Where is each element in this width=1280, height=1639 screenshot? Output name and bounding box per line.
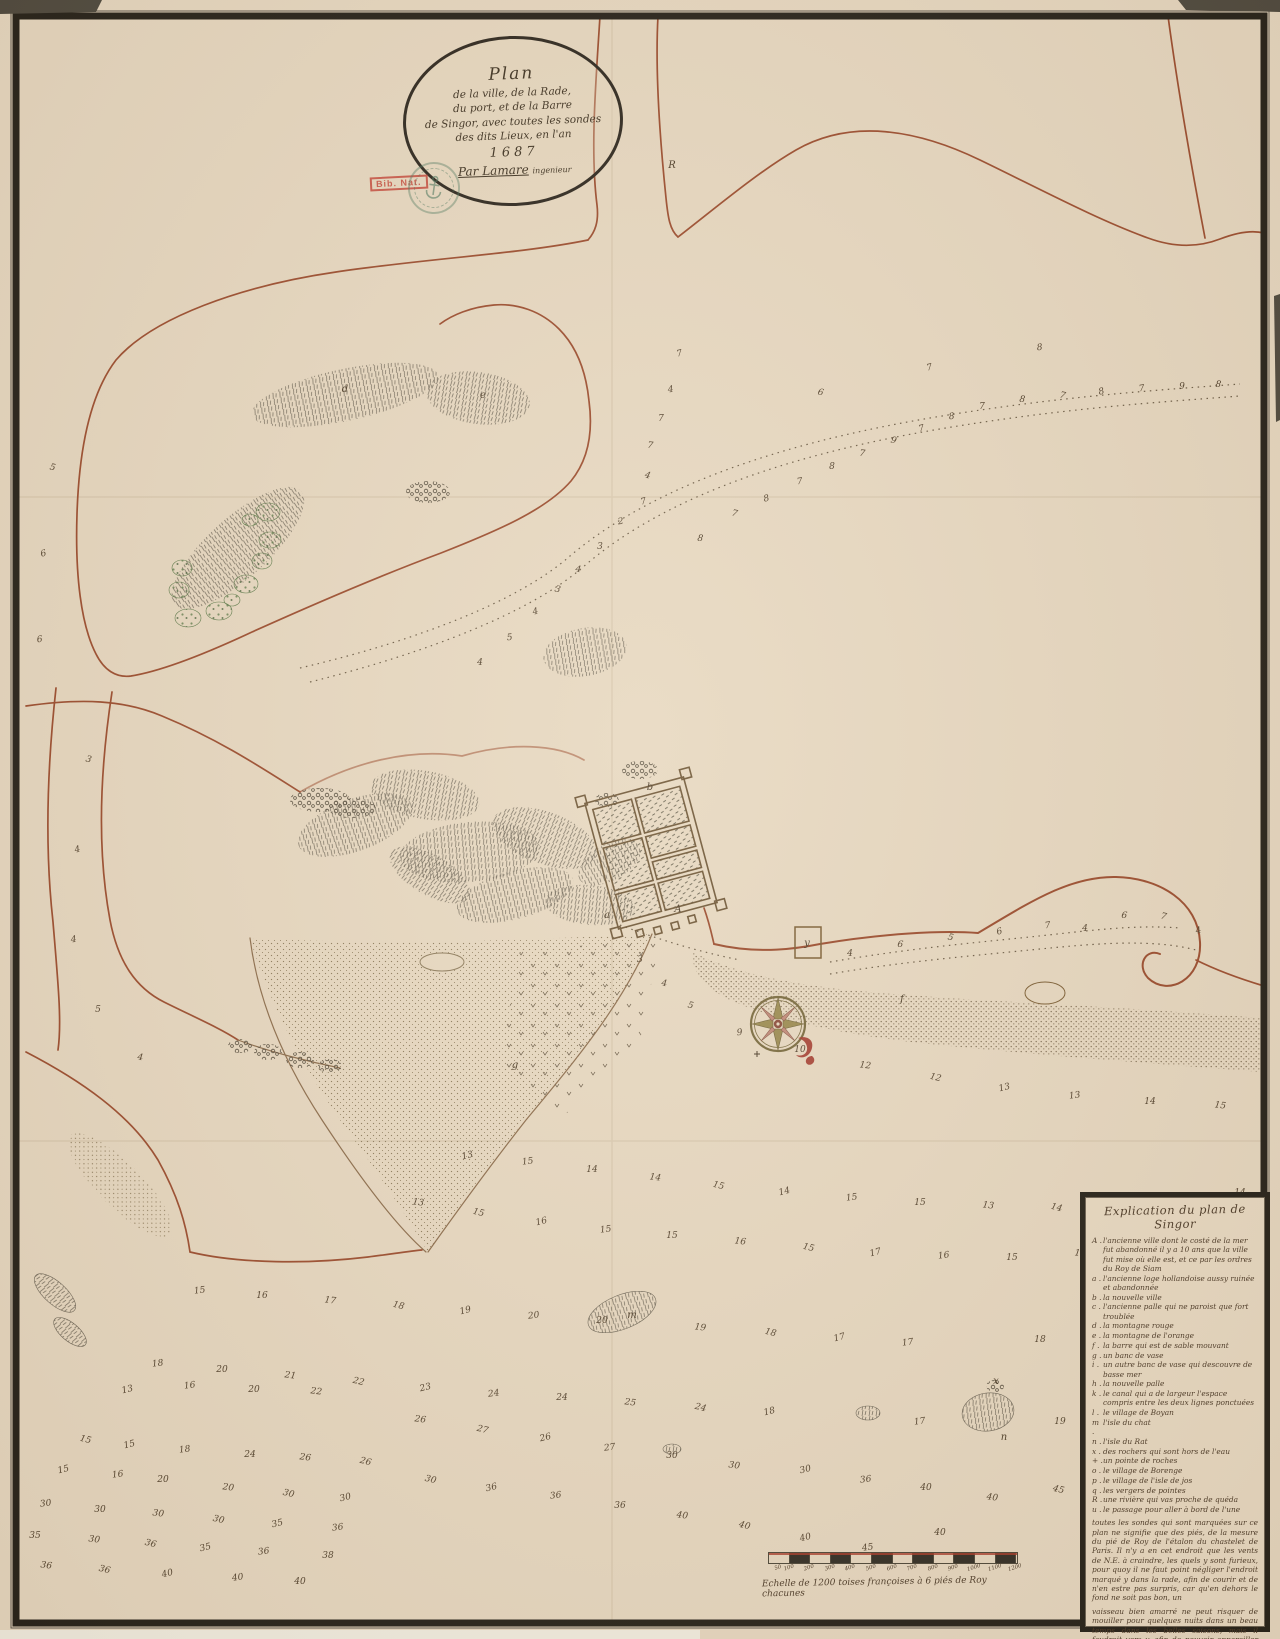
legend-entry: o .le village de Borenge bbox=[1092, 1466, 1258, 1475]
roadstead-south-shore bbox=[714, 877, 1200, 986]
sounding-number: 7 bbox=[918, 423, 926, 434]
sounding-number: 6 bbox=[897, 940, 904, 951]
sounding-number: 40 bbox=[160, 1568, 175, 1581]
sounding-number: 5 bbox=[506, 633, 513, 644]
sounding-number: 5 bbox=[48, 463, 56, 474]
scale-bar: 5010020030040050060070080090010001100120… bbox=[760, 1552, 1030, 1597]
sounding-number: 7 bbox=[1044, 921, 1051, 932]
sounding-number: 30 bbox=[666, 1451, 678, 1461]
scale-segment bbox=[913, 1553, 934, 1563]
sounding-number: 40 bbox=[675, 1510, 689, 1521]
sounding-number: 13 bbox=[982, 1200, 995, 1211]
sounding-number: 19 bbox=[694, 1322, 707, 1333]
map-year: 1687 bbox=[489, 143, 539, 162]
scale-tick-label: 100 bbox=[783, 1564, 795, 1573]
sounding-number: 8 bbox=[829, 462, 835, 472]
sounding-number: 16 bbox=[256, 1291, 268, 1301]
northwest-peninsula bbox=[77, 240, 591, 676]
sounding-number: 12 bbox=[929, 1072, 943, 1085]
sounding-number: 8 bbox=[1215, 380, 1222, 391]
sounding-number: 7 bbox=[658, 414, 664, 424]
reference-letter: m bbox=[627, 1310, 636, 1321]
sounding-number: 40 bbox=[737, 1520, 752, 1533]
scale-segment bbox=[810, 1553, 831, 1563]
sounding-number: 40 bbox=[985, 1492, 999, 1503]
legend-entry: + .un pointe de roches bbox=[1092, 1456, 1258, 1465]
sounding-number: 4 bbox=[73, 844, 82, 855]
legend-entries: A .l'ancienne ville dont le costé de la … bbox=[1092, 1236, 1258, 1514]
reference-letter: A bbox=[673, 904, 681, 915]
sounding-number: 40 bbox=[919, 1483, 932, 1493]
scale-tick-label: 1200 bbox=[1008, 1563, 1023, 1573]
sounding-number: 17 bbox=[869, 1247, 883, 1260]
sounding-number: 36 bbox=[40, 1560, 53, 1571]
legend-title: Explication du plan de Singor bbox=[1092, 1202, 1258, 1233]
scale-segment bbox=[790, 1553, 811, 1563]
sounding-number: 9 bbox=[889, 436, 897, 447]
sounding-number: 40 bbox=[798, 1532, 813, 1545]
sounding-number: 30 bbox=[94, 1505, 106, 1515]
sounding-number: 20 bbox=[221, 1482, 235, 1493]
sounding-number: 20 bbox=[156, 1475, 169, 1485]
sounding-number: 24 bbox=[555, 1393, 568, 1403]
isle-du-chat bbox=[582, 1283, 661, 1341]
sounding-number: 14 bbox=[649, 1172, 662, 1183]
legend-entry: R .une rivière qui vas proche de quéda bbox=[1092, 1495, 1258, 1504]
sounding-number: 4 bbox=[69, 935, 77, 946]
sounding-number: 30 bbox=[88, 1534, 101, 1545]
scale-tick-label: 1100 bbox=[987, 1563, 1002, 1573]
legend-panel: Explication du plan de Singor A .l'ancie… bbox=[1080, 1192, 1270, 1632]
sounding-number: 36 bbox=[549, 1490, 562, 1501]
legend-entry: e .la montagne de l'orange bbox=[1092, 1331, 1258, 1340]
sounding-number: 40 bbox=[933, 1528, 946, 1538]
scale-segment bbox=[954, 1553, 975, 1563]
scale-bar-ticks: 5010020030040050060070080090010001100120… bbox=[768, 1564, 1016, 1574]
reference-letter: b bbox=[647, 782, 653, 793]
scale-tick-label: 900 bbox=[947, 1564, 959, 1573]
sounding-number: 4 bbox=[1194, 925, 1203, 936]
reference-letter: a bbox=[604, 910, 610, 921]
compass-cross bbox=[754, 1051, 760, 1057]
sounding-number: 13 bbox=[998, 1082, 1012, 1095]
sounding-number: 18 bbox=[178, 1444, 191, 1455]
legend-entry: g .un banc de vase bbox=[1092, 1351, 1258, 1360]
legend-entry: q .les vergers de pointes bbox=[1092, 1486, 1258, 1495]
sounding-number: 25 bbox=[623, 1397, 637, 1408]
sounding-number: 4 bbox=[136, 1053, 144, 1064]
sounding-number: 17 bbox=[913, 1416, 926, 1427]
reference-letter: d bbox=[342, 384, 348, 395]
sounding-number: 36 bbox=[859, 1474, 872, 1485]
sounding-number: 7 bbox=[926, 362, 934, 373]
sounding-number: 14 bbox=[778, 1186, 792, 1199]
sounding-number: 20 bbox=[215, 1365, 228, 1375]
sounding-number: 15 bbox=[472, 1207, 486, 1220]
river-east-bank bbox=[657, 16, 678, 237]
scale-segment bbox=[831, 1553, 852, 1563]
sounding-number: 8 bbox=[1036, 343, 1043, 354]
scale-tick-label: 700 bbox=[906, 1564, 918, 1573]
sounding-number: 20 bbox=[595, 1316, 608, 1326]
sounding-number: 7 bbox=[979, 402, 985, 412]
corner-shore bbox=[1168, 16, 1205, 238]
west-river-bank2 bbox=[102, 692, 238, 1040]
sounding-number: 7 bbox=[1058, 391, 1066, 402]
sounding-number: 14 bbox=[1050, 1202, 1064, 1215]
author-signature: Par Lamare ingenieur bbox=[458, 160, 572, 180]
sounding-number: 4 bbox=[643, 470, 652, 481]
stamp-ring bbox=[411, 165, 456, 210]
sounding-number: 16 bbox=[111, 1469, 124, 1480]
northeast-shore bbox=[678, 131, 1264, 245]
sounding-number: 4 bbox=[531, 606, 540, 617]
sounding-number: 3 bbox=[597, 542, 603, 552]
legend-entry: l .le village de Boyan bbox=[1092, 1408, 1258, 1417]
legend-entry: i .un autre banc de vase qui descouvre d… bbox=[1092, 1360, 1258, 1379]
sounding-number: 26 bbox=[538, 1432, 553, 1445]
sounding-number: 23 bbox=[418, 1382, 433, 1395]
sounding-number: 15 bbox=[521, 1156, 534, 1167]
sounding-number: 40 bbox=[293, 1577, 306, 1587]
sounding-number: 24 bbox=[693, 1402, 708, 1415]
bar-blob bbox=[1025, 982, 1065, 1004]
sheet-bottom-edge bbox=[0, 1630, 700, 1639]
sounding-number: 36 bbox=[257, 1546, 270, 1557]
legend-entry: b .la nouvelle ville bbox=[1092, 1293, 1258, 1302]
sounding-number: 16 bbox=[183, 1380, 196, 1391]
scale-segment bbox=[872, 1553, 893, 1563]
legend-entry: a .l'ancienne loge hollandoise aussy rui… bbox=[1092, 1274, 1258, 1293]
scale-tick-label: 300 bbox=[824, 1564, 836, 1573]
scale-segment bbox=[934, 1553, 955, 1563]
sounding-number: 38 bbox=[322, 1551, 334, 1561]
reference-letter: e bbox=[480, 390, 486, 401]
sounding-number: 30 bbox=[424, 1474, 438, 1487]
sounding-number: 30 bbox=[152, 1508, 165, 1519]
soundings-layer: 7477472343454878787978787879867846567467… bbox=[29, 343, 1246, 1587]
sounding-number: 26 bbox=[413, 1414, 427, 1425]
sounding-number: 22 bbox=[309, 1386, 323, 1397]
sounding-number: 7 bbox=[859, 449, 866, 460]
reference-letter: n bbox=[1001, 1432, 1007, 1443]
sounding-number: 36 bbox=[331, 1522, 344, 1533]
reference-letter: y bbox=[803, 938, 810, 949]
islands bbox=[28, 1267, 1016, 1454]
scale-tick-label: 800 bbox=[927, 1564, 939, 1573]
scale-segment bbox=[851, 1553, 872, 1563]
reference-letter: g bbox=[512, 1060, 518, 1071]
scale-tick-label: 600 bbox=[886, 1564, 898, 1573]
sounding-number: 30 bbox=[212, 1514, 226, 1527]
sounding-number: 22 bbox=[351, 1376, 366, 1389]
scale-tick-label: 1000 bbox=[966, 1563, 981, 1573]
legend-notes: toutes les sondes qui sont marquées sur … bbox=[1092, 1518, 1258, 1639]
sounding-number: 27 bbox=[475, 1424, 490, 1437]
sounding-number: 16 bbox=[734, 1236, 747, 1247]
scale-tick-label: 200 bbox=[803, 1564, 815, 1573]
sounding-number: 35 bbox=[199, 1542, 213, 1555]
scale-bar-cells bbox=[768, 1552, 1018, 1564]
sounding-number: 6 bbox=[40, 548, 48, 559]
shore-shoal bbox=[55, 1120, 185, 1250]
sounding-number: 4 bbox=[1081, 924, 1088, 934]
sounding-number: 15 bbox=[1214, 1100, 1227, 1111]
sounding-number: 7 bbox=[1159, 912, 1167, 923]
sounding-number: 9 bbox=[736, 1028, 743, 1039]
sounding-number: 10 bbox=[794, 1045, 806, 1055]
sounding-number: 36 bbox=[98, 1564, 112, 1577]
sounding-number: 5 bbox=[686, 1001, 694, 1012]
scale-caption: Echelle de 1200 toises françoises à 6 pi… bbox=[762, 1575, 1030, 1600]
sounding-number: 9 bbox=[1179, 382, 1185, 392]
sheet-edge-shadows bbox=[0, 0, 1280, 422]
sounding-number: 15 bbox=[712, 1180, 726, 1193]
sounding-number: 15 bbox=[845, 1192, 858, 1203]
map-title: Plan bbox=[488, 63, 535, 88]
sounding-number: 17 bbox=[901, 1337, 914, 1348]
scale-segment bbox=[996, 1553, 1017, 1563]
sounding-number: 14 bbox=[586, 1165, 598, 1175]
sounding-number: 19 bbox=[459, 1305, 473, 1318]
sounding-number: 7 bbox=[676, 348, 684, 359]
sounding-number: 20 bbox=[526, 1310, 540, 1321]
sounding-number: 6 bbox=[36, 635, 43, 646]
legend-note: vaisseau bien amarré ne peut risquer de … bbox=[1092, 1607, 1258, 1639]
town-east-shore bbox=[704, 908, 714, 944]
sounding-number: 7 bbox=[796, 477, 803, 488]
sounding-number: 18 bbox=[764, 1327, 778, 1340]
sounding-number: 30 bbox=[282, 1488, 296, 1501]
legend-entry: d .la montagne rouge bbox=[1092, 1321, 1258, 1330]
scale-tick-label: 50 bbox=[774, 1564, 783, 1572]
scale-segment bbox=[893, 1553, 914, 1563]
sounding-number: 12 bbox=[859, 1060, 872, 1071]
sounding-number: 15 bbox=[57, 1464, 71, 1477]
sounding-number: 4 bbox=[666, 385, 674, 396]
legend-entry: h .la nouvelle palle bbox=[1092, 1379, 1258, 1388]
sounding-number: 15 bbox=[1006, 1253, 1018, 1263]
sounding-number: 4 bbox=[476, 658, 483, 668]
sounding-number: 13 bbox=[1068, 1090, 1081, 1101]
reference-letter: x bbox=[993, 1376, 999, 1387]
sounding-number: 7 bbox=[647, 441, 654, 452]
sounding-number: 36 bbox=[485, 1482, 499, 1495]
sounding-number: 35 bbox=[29, 1531, 41, 1541]
sounding-number: 36 bbox=[614, 1501, 626, 1511]
legend-entry: n .l'isle du Rat bbox=[1092, 1437, 1258, 1446]
midland-north-shore bbox=[26, 701, 300, 792]
isle-du-rat bbox=[960, 1390, 1017, 1435]
sounding-number: 7 bbox=[640, 496, 648, 507]
sounding-number: 5 bbox=[946, 933, 954, 944]
sounding-number: 35 bbox=[271, 1518, 285, 1531]
sounding-number: 17 bbox=[324, 1295, 337, 1306]
shore-exit-east bbox=[1196, 960, 1264, 986]
sounding-number: 30 bbox=[799, 1464, 813, 1477]
sounding-number: 13 bbox=[121, 1384, 135, 1397]
legend-entry: A .l'ancienne ville dont le costé de la … bbox=[1092, 1236, 1258, 1273]
sounding-number: 24 bbox=[486, 1388, 500, 1399]
legend-entry: x .des rochers qui sont hors de l'eau bbox=[1092, 1447, 1258, 1456]
legend-entry: f .la barre qui est de sable mouvant bbox=[1092, 1341, 1258, 1350]
sounding-number: 30 bbox=[728, 1460, 741, 1471]
sounding-number: 20 bbox=[247, 1385, 260, 1395]
sounding-number: 8 bbox=[948, 412, 955, 423]
sounding-number: 7 bbox=[1138, 384, 1145, 395]
sounding-number: 24 bbox=[243, 1450, 256, 1460]
legend-entry: u .le passage pour aller à bord de l'une bbox=[1092, 1505, 1258, 1514]
sounding-number: 6 bbox=[816, 388, 824, 399]
sounding-number: 6 bbox=[996, 926, 1004, 937]
sounding-number: 17 bbox=[833, 1332, 847, 1345]
west-river-bank1 bbox=[48, 688, 60, 1050]
sounding-number: 8 bbox=[697, 534, 704, 545]
sounding-number: 15 bbox=[193, 1285, 206, 1296]
sounding-number: 4 bbox=[846, 949, 853, 959]
scale-segment bbox=[769, 1553, 790, 1563]
sounding-number: 15 bbox=[123, 1439, 137, 1452]
sounding-number: 15 bbox=[79, 1434, 93, 1447]
legend-entry: k .le canal qui a de largeur l'espace co… bbox=[1092, 1389, 1258, 1408]
sounding-number: 8 bbox=[1098, 386, 1106, 397]
sounding-number: 16 bbox=[535, 1216, 549, 1229]
sounding-number: 26 bbox=[358, 1456, 373, 1469]
scale-segment bbox=[975, 1553, 996, 1563]
legend-entry: c .l'ancienne palle qui ne paroist que f… bbox=[1092, 1302, 1258, 1321]
sounding-number: 4 bbox=[574, 565, 582, 576]
sounding-number: 3 bbox=[553, 585, 561, 596]
sounding-number: 16 bbox=[937, 1250, 950, 1261]
sounding-number: 7 bbox=[730, 509, 738, 520]
reference-letter: R bbox=[667, 160, 676, 171]
fold-lines bbox=[16, 16, 1264, 1623]
sounding-number: 18 bbox=[151, 1358, 164, 1369]
coastlines bbox=[26, 16, 1264, 1262]
sounding-number: 45 bbox=[1051, 1484, 1066, 1497]
map-sheet: 7477472343454878787978787879867846567467… bbox=[0, 0, 1280, 1639]
sounding-number: 27 bbox=[602, 1442, 616, 1453]
scale-tick-label: 500 bbox=[865, 1564, 877, 1573]
sounding-number: 6 bbox=[1121, 911, 1128, 922]
sounding-number: 13 bbox=[412, 1197, 425, 1208]
legend-note: toutes les sondes qui sont marquées sur … bbox=[1092, 1518, 1258, 1603]
sounding-number: 36 bbox=[144, 1538, 158, 1551]
sounding-number: 5 bbox=[95, 1005, 101, 1015]
scale-tick-label: 400 bbox=[844, 1564, 856, 1573]
legend-entry: p .le village de l'isle de jos bbox=[1092, 1476, 1258, 1485]
sounding-number: 15 bbox=[914, 1198, 926, 1208]
legend-entry: m .l'isle du chat bbox=[1092, 1418, 1258, 1437]
sounding-number: 18 bbox=[1034, 1335, 1046, 1345]
sounding-number: 26 bbox=[298, 1452, 312, 1463]
sounding-number: 18 bbox=[392, 1300, 406, 1313]
sounding-number: 40 bbox=[230, 1572, 244, 1583]
sounding-number: 15 bbox=[599, 1224, 612, 1235]
sounding-number: 14 bbox=[1144, 1097, 1156, 1107]
pond bbox=[420, 953, 464, 971]
map-frame bbox=[16, 16, 1264, 1623]
sounding-number: 21 bbox=[283, 1370, 297, 1381]
sounding-number: 3 bbox=[637, 955, 643, 965]
sounding-number: 3 bbox=[84, 755, 92, 766]
sounding-number: 8 bbox=[763, 493, 771, 504]
sounding-number: 19 bbox=[1054, 1417, 1066, 1427]
sounding-number: 15 bbox=[666, 1231, 678, 1241]
sounding-number: 4 bbox=[660, 979, 668, 990]
sounding-number: 18 bbox=[763, 1406, 777, 1419]
sounding-number: 15 bbox=[802, 1242, 816, 1255]
sounding-number: 30 bbox=[39, 1498, 52, 1509]
sounding-number: 30 bbox=[339, 1492, 353, 1505]
